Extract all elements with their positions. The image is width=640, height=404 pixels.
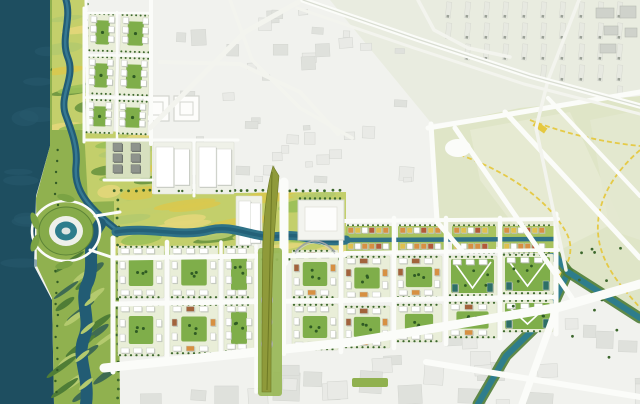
tree-icon — [485, 256, 487, 258]
building — [421, 228, 427, 234]
tree-icon — [483, 224, 485, 226]
building — [347, 292, 355, 297]
building — [226, 276, 231, 283]
tree-icon — [230, 296, 232, 298]
tree-icon — [55, 182, 57, 184]
building — [407, 228, 413, 234]
industrial-shed-dot — [503, 15, 506, 18]
water-texture — [3, 175, 39, 185]
tree-icon — [302, 190, 305, 193]
building — [383, 228, 389, 234]
building — [369, 228, 375, 234]
tree-icon — [387, 224, 389, 226]
tree-icon — [419, 304, 421, 306]
road — [113, 255, 345, 258]
building — [451, 330, 459, 335]
industrial-shed-dot — [617, 57, 620, 60]
building — [355, 244, 361, 250]
industrial-shed-dot — [617, 36, 620, 39]
tree-icon — [116, 217, 119, 220]
tree-icon — [378, 256, 380, 258]
building — [91, 26, 97, 32]
building — [146, 249, 154, 254]
courtyard-tree-icon — [512, 305, 515, 308]
tree-icon — [309, 250, 311, 252]
courtyard-tree-icon — [135, 330, 138, 333]
tree-icon — [408, 340, 410, 342]
tree-icon — [304, 197, 306, 199]
tree-icon — [482, 336, 484, 338]
building — [226, 332, 231, 339]
building — [211, 276, 216, 283]
building — [173, 290, 181, 295]
tree-icon — [240, 189, 243, 192]
block-courtyard — [303, 262, 327, 286]
building — [143, 18, 149, 24]
tree-icon — [493, 336, 495, 338]
building — [141, 61, 147, 67]
courtyard-tree-icon — [422, 276, 425, 279]
building — [400, 228, 406, 234]
tree-icon — [455, 256, 457, 258]
courtyard-tree-icon — [472, 269, 475, 272]
tree-icon — [299, 197, 301, 199]
tree-icon — [55, 391, 57, 393]
tree-icon — [141, 354, 143, 356]
tree-icon — [157, 246, 159, 248]
tree-icon — [315, 250, 317, 252]
office-building — [131, 165, 140, 173]
building — [121, 290, 129, 295]
building — [120, 334, 125, 341]
block-courtyard — [406, 267, 432, 287]
building — [454, 228, 460, 234]
building — [91, 16, 97, 22]
building — [120, 262, 125, 269]
office-building — [131, 154, 140, 162]
tree-icon — [509, 330, 511, 332]
building — [346, 282, 351, 289]
tree-icon — [397, 304, 399, 306]
tree-icon — [482, 302, 484, 304]
building — [121, 79, 127, 85]
courtyard-tree-icon — [142, 327, 145, 330]
existing-building — [339, 37, 353, 48]
building — [424, 334, 432, 339]
existing-building — [604, 26, 618, 35]
courtyard-tree-icon — [417, 273, 420, 276]
existing-building — [343, 31, 350, 38]
tree-icon — [397, 256, 399, 258]
tree-icon — [171, 296, 173, 298]
tree-icon — [246, 189, 249, 192]
building — [141, 70, 147, 76]
tree-icon — [487, 336, 489, 338]
tree-icon — [454, 302, 456, 304]
existing-building — [462, 337, 477, 350]
existing-building — [140, 393, 161, 404]
building — [295, 307, 303, 312]
tree-icon — [414, 224, 416, 226]
building — [123, 17, 129, 23]
courtyard-tree-icon — [530, 265, 533, 268]
courtyard-tree-icon — [486, 273, 489, 276]
industrial-shed-dot — [579, 57, 582, 60]
courtyard-tree-icon — [241, 272, 244, 275]
existing-building — [315, 43, 330, 57]
tree-icon — [578, 279, 581, 282]
tree-icon — [236, 296, 238, 298]
courtyard-tree-icon — [311, 269, 314, 272]
building — [504, 244, 510, 250]
city-block — [118, 304, 164, 357]
building — [412, 307, 420, 312]
building — [200, 290, 208, 295]
tree-icon — [198, 296, 200, 298]
tree-icon — [182, 246, 184, 248]
building — [186, 290, 194, 295]
building — [362, 228, 368, 234]
tree-icon — [527, 254, 529, 256]
tree-icon — [56, 281, 58, 283]
tree-icon — [119, 354, 121, 356]
building — [146, 348, 154, 353]
tree-icon — [193, 246, 195, 248]
building — [157, 262, 162, 269]
tree-icon — [56, 358, 58, 360]
tree-icon — [545, 300, 547, 302]
tree-icon — [429, 224, 431, 226]
existing-building — [312, 27, 324, 34]
tree-icon — [435, 256, 437, 258]
existing-building — [304, 133, 315, 145]
tree-icon — [608, 356, 611, 359]
tree-icon — [521, 292, 523, 294]
tree-icon — [515, 254, 517, 256]
building — [518, 244, 524, 250]
block-courtyard — [231, 312, 247, 344]
tree-icon — [326, 296, 328, 298]
tree-icon — [187, 352, 189, 354]
building — [107, 60, 113, 66]
tree-icon — [424, 224, 426, 226]
building — [468, 244, 474, 250]
building — [239, 201, 251, 245]
existing-building — [317, 155, 330, 165]
building — [108, 36, 114, 42]
tree-icon — [298, 304, 300, 306]
building — [407, 244, 413, 250]
tree-icon — [247, 296, 249, 298]
existing-building — [329, 150, 341, 159]
courtyard-tree-icon — [144, 270, 147, 273]
building — [227, 344, 235, 349]
tree-icon — [130, 296, 132, 298]
tree-icon — [293, 304, 295, 306]
building — [346, 269, 351, 276]
masterplan-map — [0, 0, 640, 404]
tree-icon — [513, 224, 515, 226]
tree-icon — [548, 224, 550, 226]
building — [238, 307, 246, 312]
road — [345, 219, 558, 221]
building — [399, 307, 407, 312]
industrial-shed-dot — [541, 36, 544, 39]
building — [247, 262, 252, 269]
building — [226, 318, 231, 325]
tree-icon — [383, 306, 385, 308]
tree-icon — [460, 336, 462, 338]
building — [173, 249, 181, 254]
tree-icon — [309, 197, 311, 199]
north-block — [196, 142, 234, 194]
road — [86, 0, 88, 130]
island-core-pavilion — [62, 228, 71, 235]
industrial-shed-dot — [579, 36, 582, 39]
building — [362, 244, 368, 250]
tree-icon — [424, 340, 426, 342]
building — [146, 290, 154, 295]
tree-icon — [424, 304, 426, 306]
existing-building — [282, 145, 289, 153]
tree-icon — [571, 335, 574, 338]
tree-icon — [124, 296, 126, 298]
tree-icon — [367, 346, 369, 348]
tree-icon — [331, 304, 333, 306]
tree-icon — [146, 296, 148, 298]
tree-icon — [430, 304, 432, 306]
tree-icon — [171, 246, 173, 248]
building — [347, 309, 355, 314]
city-block — [448, 256, 497, 297]
industrial-shed-dot — [446, 15, 449, 18]
building — [465, 305, 473, 310]
tree-icon — [142, 189, 145, 192]
residential-block — [88, 13, 117, 53]
building — [294, 331, 299, 338]
building — [331, 318, 336, 325]
courtyard-tree-icon — [365, 324, 368, 327]
tree-icon — [216, 190, 218, 192]
building — [346, 330, 351, 337]
tree-icon — [247, 246, 249, 248]
tree-icon — [593, 309, 596, 312]
tree-icon — [434, 224, 436, 226]
tree-icon — [319, 197, 321, 199]
courtyard-tree-icon — [542, 314, 545, 317]
existing-building — [596, 8, 614, 18]
building — [534, 258, 542, 263]
existing-building — [314, 176, 327, 183]
courtyard-tree-icon — [136, 271, 139, 274]
tree-icon — [503, 292, 505, 294]
tree-icon — [324, 197, 326, 199]
building — [475, 228, 481, 234]
building — [360, 309, 368, 314]
tree-icon — [527, 300, 529, 302]
building — [247, 332, 252, 339]
tree-icon — [478, 224, 480, 226]
courtyard-tree-icon — [188, 324, 191, 327]
tree-icon — [304, 250, 306, 252]
building — [90, 35, 96, 41]
tree-icon — [56, 160, 58, 162]
existing-building — [618, 340, 637, 352]
tree-icon — [54, 193, 56, 195]
tree-icon — [141, 246, 143, 248]
building — [106, 103, 112, 109]
tree-icon — [424, 256, 426, 258]
building — [119, 120, 125, 126]
block-base — [106, 138, 150, 178]
tree-icon — [487, 302, 489, 304]
building — [435, 269, 440, 276]
tree-icon — [54, 336, 56, 338]
tree-icon — [254, 189, 257, 192]
tree-icon — [176, 352, 178, 354]
industrial-shed-dot — [598, 57, 601, 60]
tree-icon — [473, 256, 475, 258]
tree-icon — [378, 306, 380, 308]
building — [227, 307, 235, 312]
building — [383, 244, 389, 250]
existing-building — [191, 390, 207, 401]
tree-icon — [435, 340, 437, 342]
courtyard-tree-icon — [366, 276, 369, 279]
north-block — [106, 138, 150, 178]
industrial-shed-dot — [617, 78, 620, 81]
building — [89, 59, 95, 65]
courtyard-tree-icon — [195, 327, 198, 330]
tree-icon — [55, 292, 57, 294]
courtyard-tree-icon — [136, 326, 139, 329]
tree-icon — [449, 302, 451, 304]
building — [134, 307, 142, 312]
courtyard-tree-icon — [315, 330, 318, 333]
building — [89, 69, 95, 75]
tree-icon — [119, 246, 121, 248]
tree-icon — [130, 354, 132, 356]
tree-icon — [241, 296, 243, 298]
building — [200, 346, 208, 351]
building — [521, 304, 529, 309]
tree-icon — [615, 329, 618, 332]
tree-icon — [543, 224, 545, 226]
building — [346, 319, 351, 326]
tree-icon — [413, 304, 415, 306]
tree-icon — [309, 304, 311, 306]
tree-icon — [152, 354, 154, 356]
existing-building — [215, 386, 239, 404]
tree-icon — [309, 296, 311, 298]
building — [424, 290, 432, 295]
tree-icon — [215, 246, 217, 248]
industrial-shed-dot — [522, 57, 525, 60]
courtyard-tree-icon — [194, 332, 197, 335]
existing-building — [583, 325, 596, 338]
tree-icon — [229, 190, 231, 192]
existing-building — [403, 177, 411, 182]
tree-icon — [323, 189, 326, 192]
tree-icon — [187, 296, 189, 298]
tree-icon — [331, 296, 333, 298]
industrial-shed-dot — [579, 78, 582, 81]
building — [428, 244, 434, 250]
tree-icon — [402, 304, 404, 306]
tree-icon — [56, 347, 58, 349]
tree-icon — [454, 336, 456, 338]
tree-icon — [130, 246, 132, 248]
building — [532, 228, 538, 234]
building — [121, 70, 127, 76]
tree-icon — [533, 292, 535, 294]
tree-icon — [419, 256, 421, 258]
tree-icon — [605, 279, 608, 282]
industrial-shed-dot — [522, 36, 525, 39]
building — [227, 249, 235, 254]
courtyard-tree-icon — [526, 269, 529, 272]
tree-icon — [493, 302, 495, 304]
building — [105, 119, 111, 125]
water-texture — [4, 169, 33, 175]
building — [121, 348, 129, 353]
tree-icon — [209, 246, 211, 248]
building — [211, 262, 216, 269]
tree-icon — [347, 224, 349, 226]
tree-icon — [339, 197, 341, 199]
building — [521, 258, 529, 263]
north-block — [153, 142, 192, 194]
tree-icon — [171, 352, 173, 354]
building — [320, 290, 328, 295]
office-building — [113, 165, 122, 173]
road-junction — [445, 139, 471, 157]
tree-icon — [356, 346, 358, 348]
existing-building — [191, 29, 207, 46]
existing-building — [565, 318, 578, 329]
tree-icon — [465, 336, 467, 338]
building — [355, 228, 361, 234]
building — [479, 260, 487, 265]
building — [199, 147, 216, 187]
tree-icon — [528, 224, 530, 226]
tree-icon — [178, 190, 180, 192]
building — [360, 292, 368, 297]
tree-icon — [236, 246, 238, 248]
tree-icon — [508, 224, 510, 226]
tree-icon — [309, 189, 312, 192]
office-building — [113, 154, 122, 162]
tree-icon — [316, 189, 319, 192]
courtyard-tree-icon — [195, 271, 198, 274]
tree-icon — [539, 292, 541, 294]
courtyard-tree-icon — [318, 326, 321, 329]
building — [451, 305, 459, 310]
existing-building — [303, 125, 310, 130]
building — [107, 79, 113, 85]
tree-icon — [503, 330, 505, 332]
tree-icon — [533, 330, 535, 332]
industrial-shed-dot — [484, 15, 487, 18]
tree-icon — [539, 300, 541, 302]
residential-block — [120, 14, 151, 54]
tree-icon — [152, 246, 154, 248]
building — [173, 307, 181, 312]
tree-icon — [135, 190, 138, 193]
tree-icon — [413, 256, 415, 258]
tree-icon — [334, 197, 336, 199]
building — [238, 344, 246, 349]
